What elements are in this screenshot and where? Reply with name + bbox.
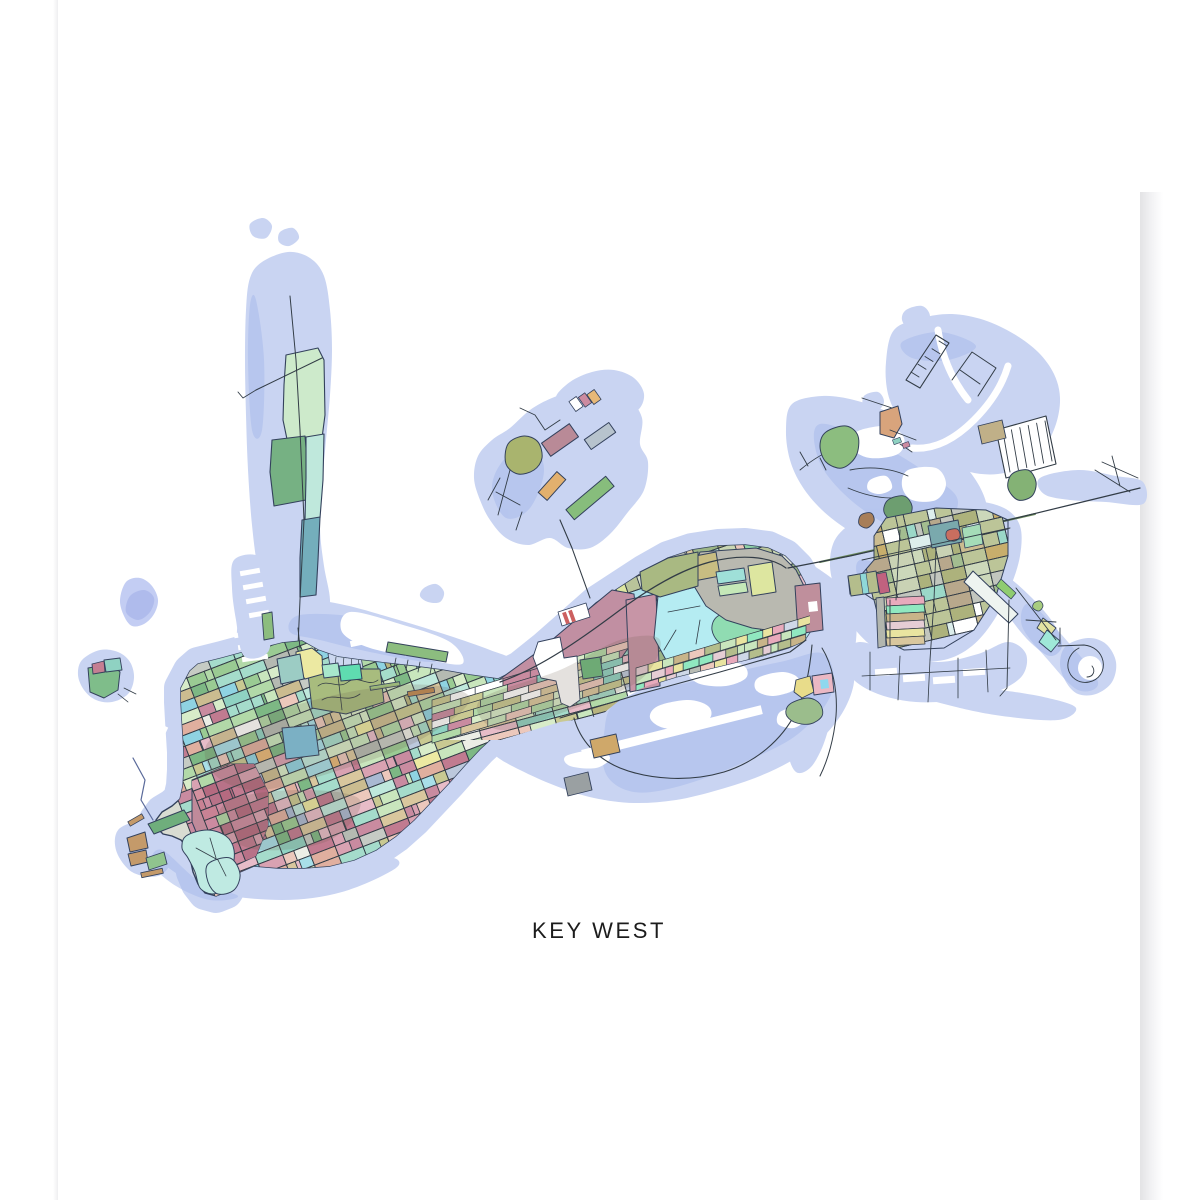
svg-text:KEY WEST: KEY WEST <box>532 918 666 943</box>
